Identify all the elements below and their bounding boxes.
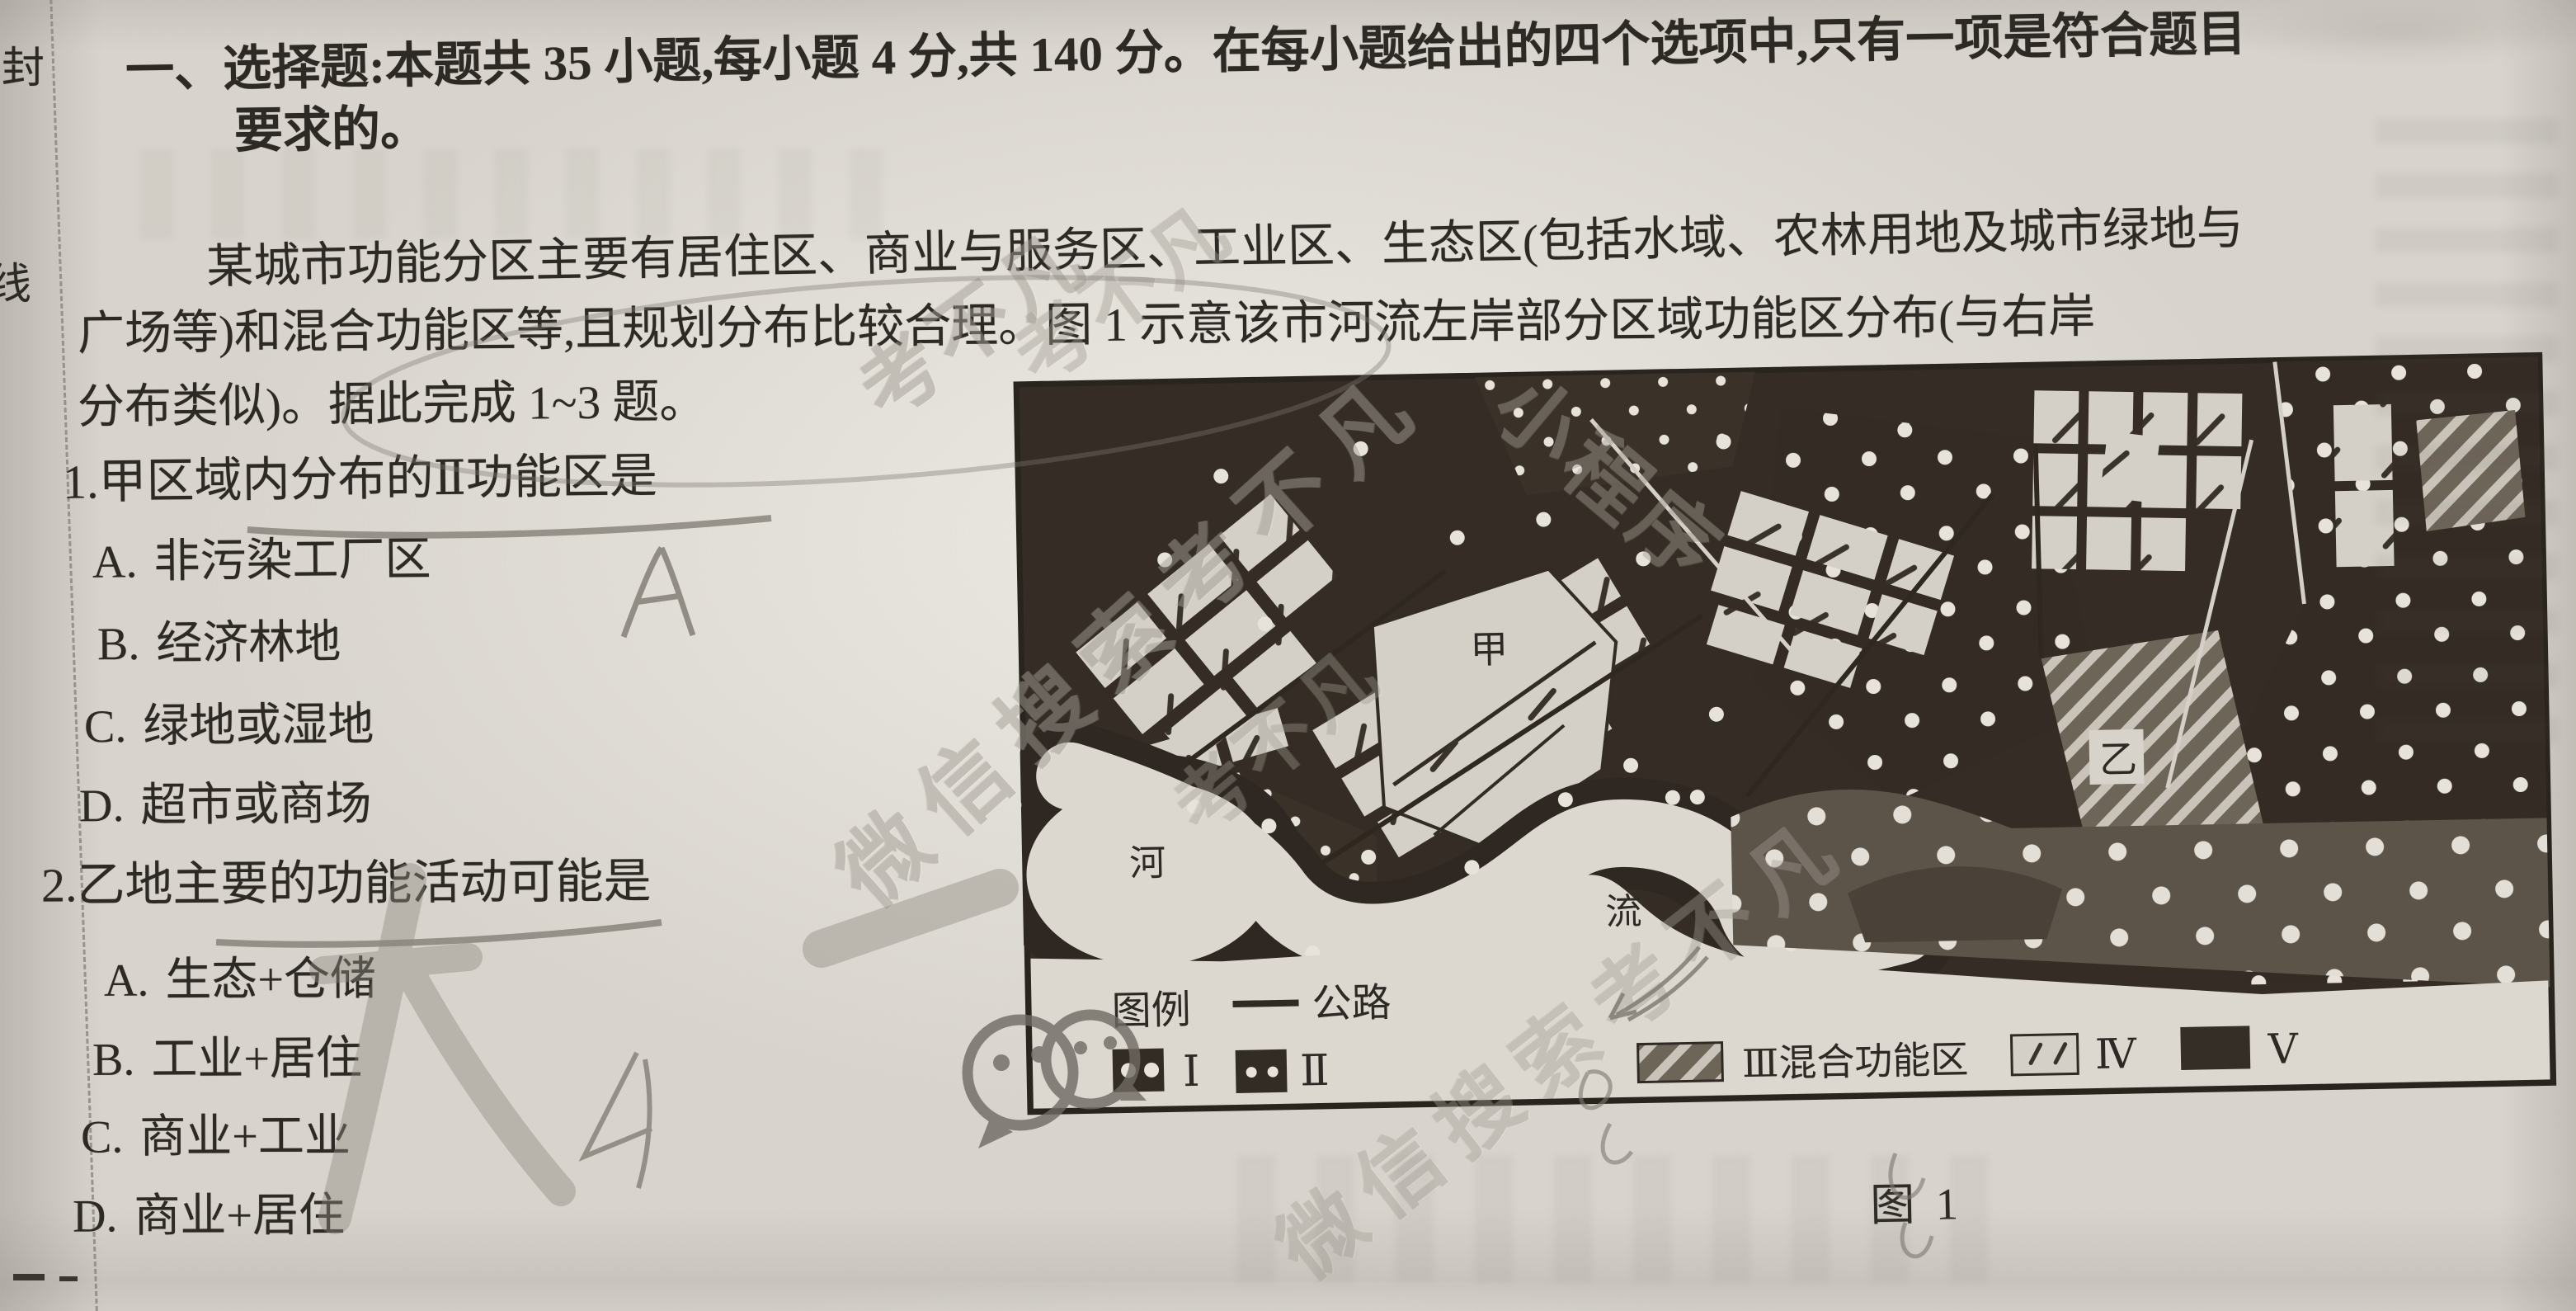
q2-option-c-text: 商业+工业 <box>139 1111 351 1162</box>
section-header-line1: 一、选择题:本题共 35 小题,每小题 4 分,共 140 分。在每小题给出的四… <box>125 10 2247 96</box>
brush-stroke-da <box>323 880 1000 1218</box>
legend-label-5: Ⅴ <box>2267 1026 2299 1073</box>
bleedthrough-smudge <box>140 149 883 239</box>
legend-swatch-3 <box>1638 1043 1723 1082</box>
q2-option-a-label: A. <box>104 955 149 1007</box>
q2-option-b-text: 工业+居住 <box>151 1033 362 1085</box>
legend-label-3: Ⅲ混合功能区 <box>1742 1039 1969 1085</box>
question-2-stem-text: 乙地主要的功能活动可能是 <box>77 854 651 912</box>
question-1-stem-text: 甲区域内分布的Ⅱ功能区是 <box>98 449 657 508</box>
pencil-underline-q2 <box>216 922 662 945</box>
section-header-line2: 要求的。 <box>234 104 430 155</box>
q2-option-d: D.商业+居住 <box>73 1192 345 1239</box>
seal-char-top: 封 <box>2 48 45 91</box>
q1-option-b-label: B. <box>97 619 140 670</box>
q1-option-a: A.非污染工厂区 <box>92 536 431 586</box>
question-1-number: 1. <box>63 455 99 508</box>
legend-road-symbol <box>1232 999 1298 1007</box>
handwritten-answer-q1 <box>624 548 693 637</box>
legend-label-4: Ⅳ <box>2094 1030 2137 1078</box>
legend-label-2: Ⅱ <box>1300 1048 1330 1096</box>
passage-line3: 分布类似)。据此完成 1~3 题。 <box>78 379 707 431</box>
legend-road-label: 公路 <box>1312 981 1392 1026</box>
q1-option-b: B.经济林地 <box>97 620 341 668</box>
map-zone-yi-label: 乙 <box>2089 729 2144 785</box>
q2-option-b: B.工业+居住 <box>92 1035 362 1083</box>
map-label-river-he: 河 <box>1129 843 1166 884</box>
q2-option-b-label: B. <box>92 1035 135 1086</box>
bleedthrough-smudge <box>2227 0 2574 66</box>
legend-title: 图例 <box>1111 988 1191 1034</box>
exam-paper-photo: { "seal": { "top": "封", "bottom": "线" },… <box>0 0 2576 1282</box>
legend-swatch-5 <box>2180 1026 2250 1070</box>
legend-swatch-4 <box>2011 1034 2078 1075</box>
legend-label-1: Ⅰ <box>1183 1049 1201 1096</box>
handwritten-mark-q2 <box>584 1053 652 1188</box>
q2-option-c-label: C. <box>81 1111 124 1162</box>
q1-option-a-text: 非污染工厂区 <box>153 534 431 587</box>
legend-swatch-2 <box>1236 1049 1288 1093</box>
map-label-yi: 乙 <box>2099 738 2138 781</box>
q1-option-c-label: C. <box>84 701 127 752</box>
q1-option-b-text: 经济林地 <box>156 617 341 670</box>
q2-option-c: C.商业+工业 <box>81 1113 351 1160</box>
q2-option-a-text: 生态+仓储 <box>165 954 376 1006</box>
q2-option-d-label: D. <box>73 1191 118 1242</box>
seal-char-bottom: 线 <box>0 264 31 307</box>
question-2-number: 2. <box>41 858 78 912</box>
map-label-river-liu: 流 <box>1605 891 1642 932</box>
q1-option-c: C.绿地或湿地 <box>84 702 374 750</box>
question-1-stem: 1.甲区域内分布的Ⅱ功能区是 <box>63 452 658 507</box>
q1-option-a-label: A. <box>92 536 138 587</box>
q2-option-a: A.生态+仓储 <box>104 956 376 1004</box>
q2-option-d-text: 商业+居住 <box>134 1190 345 1242</box>
q1-option-d-text: 超市或商场 <box>140 779 371 832</box>
pencil-underline-q1 <box>247 518 771 535</box>
q1-option-d-label: D. <box>79 780 125 832</box>
q1-option-c-text: 绿地或湿地 <box>143 700 374 752</box>
cutoff-print-marks <box>13 1274 78 1281</box>
map-label-jia: 甲 <box>1470 629 1509 672</box>
map-zone-hatched <box>2416 410 2526 531</box>
question-2-stem: 2.乙地主要的功能活动可能是 <box>41 857 652 909</box>
q1-option-d: D.超市或商场 <box>79 781 372 829</box>
figure-caption: 图 1 <box>1870 1181 1964 1228</box>
